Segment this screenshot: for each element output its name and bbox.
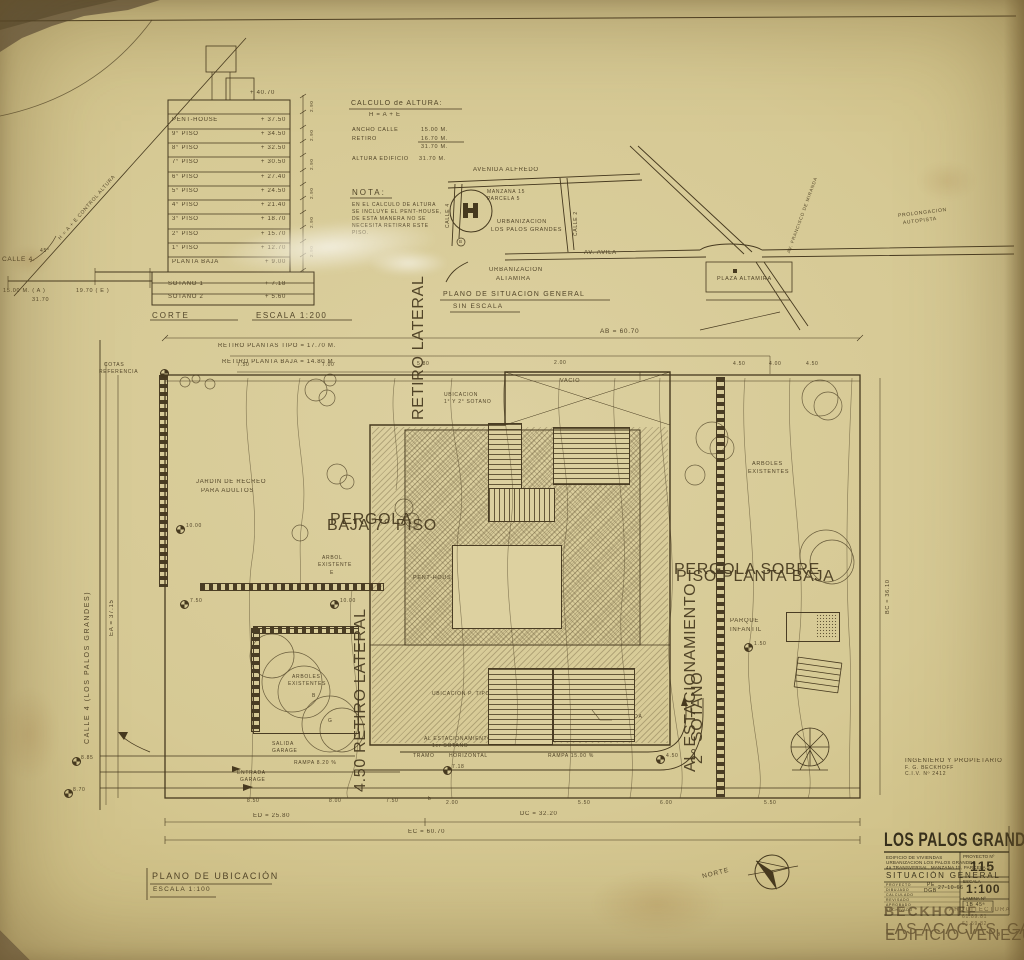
plan-lines [100, 335, 880, 844]
north-compass [748, 855, 798, 890]
benchmark-icon [656, 755, 665, 764]
right-edge-shade [1004, 0, 1024, 960]
drawing-sheet: + 40.70 PENT-HOUSE + 37.50 9° PISO + 34.… [0, 0, 1024, 960]
corner-shadow [0, 930, 30, 960]
benchmark-icon [160, 369, 169, 378]
benchmark-icon [64, 789, 73, 798]
corte-lines [8, 38, 352, 320]
benchmark-icon [72, 757, 81, 766]
linework [0, 0, 1024, 960]
map-roads [446, 146, 1014, 330]
benchmark-icon [443, 766, 452, 775]
benchmark-icon [176, 525, 185, 534]
benchmark-icon [744, 643, 753, 652]
title-block-lines [884, 826, 1009, 915]
benchmark-icon [180, 600, 189, 609]
benchmark-icon [330, 600, 339, 609]
